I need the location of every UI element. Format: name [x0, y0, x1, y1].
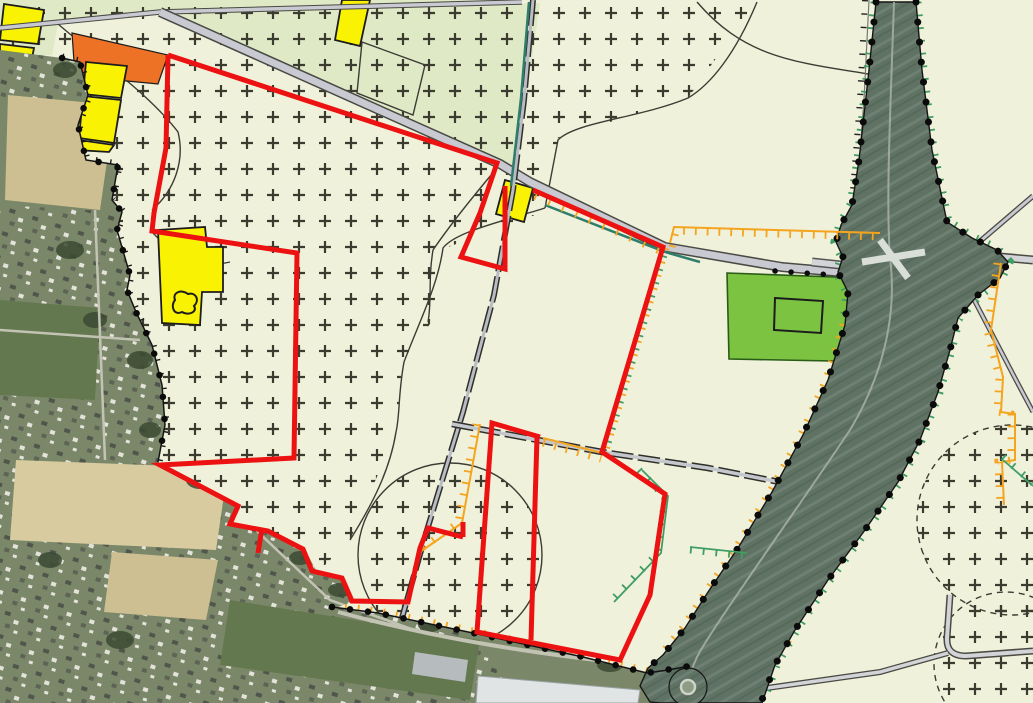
- roundabout: [669, 668, 707, 703]
- zoning-map[interactable]: [0, 0, 1033, 703]
- roundabout-inner: [681, 680, 695, 694]
- yellow-parcel-stack-1: [83, 62, 127, 98]
- map-canvas: [0, 0, 1033, 703]
- aerial-field-tan-3: [104, 552, 218, 620]
- aerial-field-green: [0, 300, 100, 400]
